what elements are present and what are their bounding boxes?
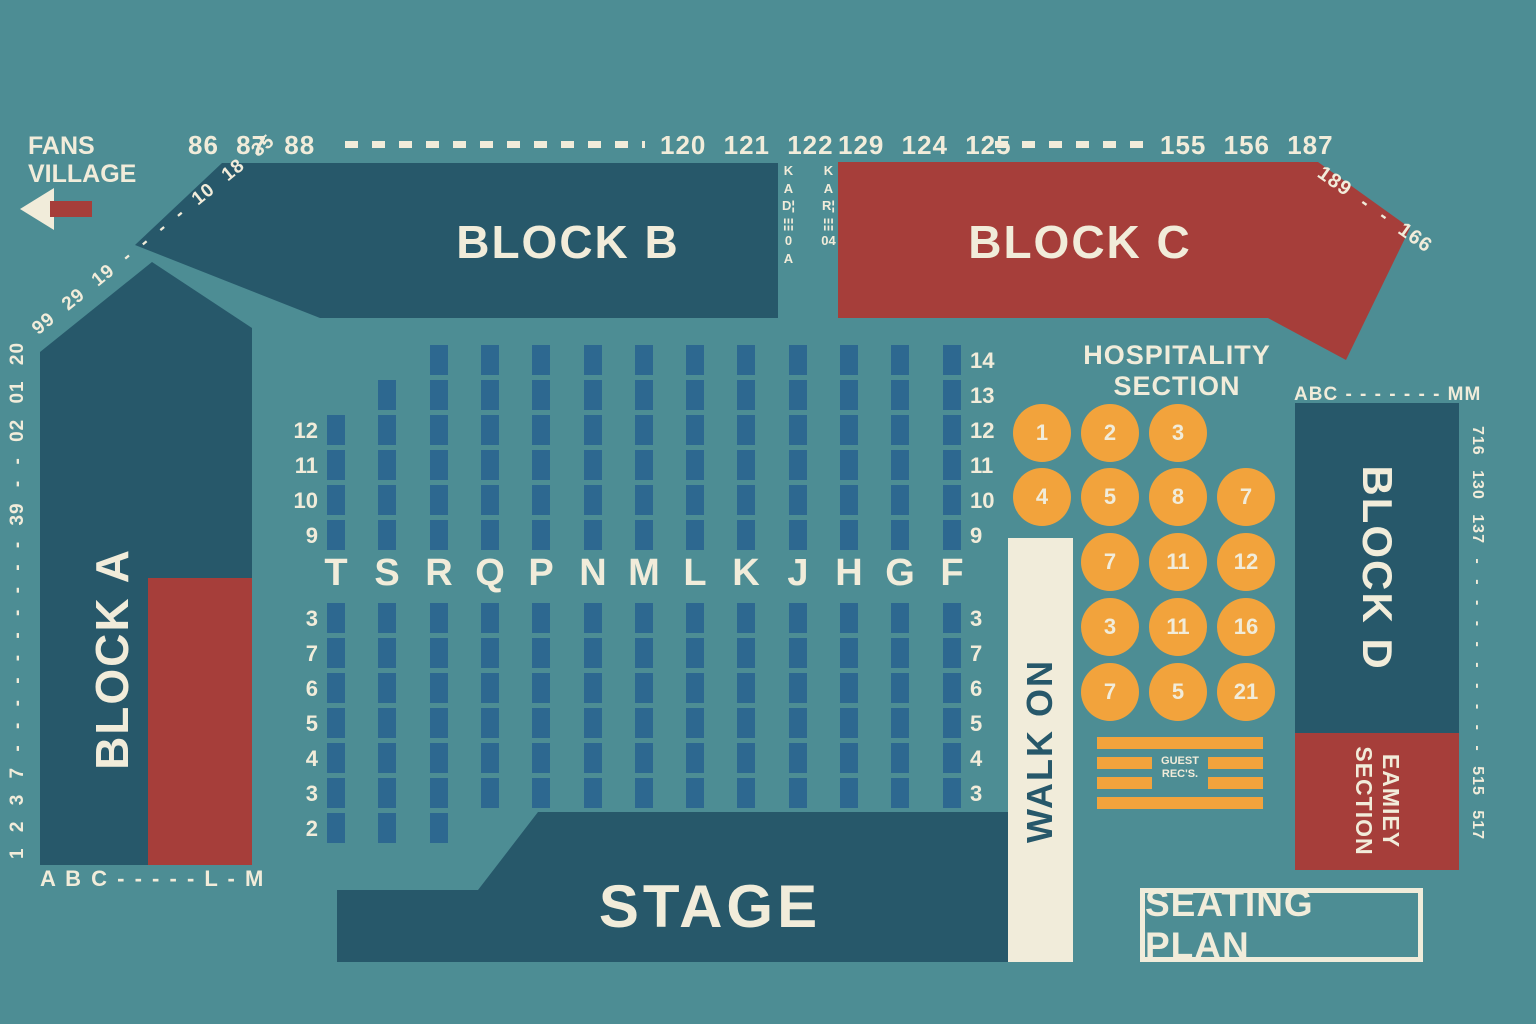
seat[interactable] xyxy=(686,520,704,550)
row-letter: M xyxy=(618,552,670,595)
seat[interactable] xyxy=(378,520,396,550)
guest-stripe xyxy=(1097,777,1152,789)
seat[interactable] xyxy=(584,708,602,738)
seat[interactable] xyxy=(430,520,448,550)
block-d-label: BLOCK D xyxy=(1353,403,1401,733)
seat[interactable] xyxy=(378,603,396,633)
seat[interactable] xyxy=(840,708,858,738)
seat[interactable] xyxy=(430,415,448,445)
row-number: 3 xyxy=(970,781,1010,807)
hospitality-title-line2: SECTION xyxy=(1045,371,1309,402)
seat[interactable] xyxy=(891,708,909,738)
seat[interactable] xyxy=(943,520,961,550)
block-a-red-shape[interactable] xyxy=(148,578,252,865)
block-b-right-edge-numbers: KAD¦¦¦¦0A xyxy=(781,162,796,267)
row-number: 9 xyxy=(284,523,318,549)
seat[interactable] xyxy=(686,485,704,515)
seat[interactable] xyxy=(737,345,755,375)
row-letter: P xyxy=(515,552,567,595)
seat[interactable] xyxy=(327,743,345,773)
seat[interactable] xyxy=(789,778,807,808)
seat[interactable] xyxy=(481,638,499,668)
row-number: 2 xyxy=(284,816,318,842)
seat[interactable] xyxy=(584,673,602,703)
seat[interactable] xyxy=(378,380,396,410)
seat[interactable] xyxy=(584,345,602,375)
hospitality-table[interactable]: 7 xyxy=(1081,533,1139,591)
seat[interactable] xyxy=(327,450,345,480)
seat[interactable] xyxy=(891,603,909,633)
seat[interactable] xyxy=(737,485,755,515)
seat[interactable] xyxy=(327,708,345,738)
guest-stripe xyxy=(1097,757,1152,769)
seat[interactable] xyxy=(481,345,499,375)
hospitality-table[interactable]: 7 xyxy=(1081,663,1139,721)
row-letter: G xyxy=(874,552,926,595)
seat[interactable] xyxy=(430,708,448,738)
seat[interactable] xyxy=(532,603,550,633)
seat[interactable] xyxy=(840,415,858,445)
fans-village-arrow-icon xyxy=(20,188,90,230)
seat[interactable] xyxy=(891,638,909,668)
seat[interactable] xyxy=(943,603,961,633)
row-number: 12 xyxy=(970,418,1010,444)
seat[interactable] xyxy=(686,743,704,773)
seat[interactable] xyxy=(789,743,807,773)
row-letter: K xyxy=(720,552,772,595)
seat[interactable] xyxy=(430,673,448,703)
seat[interactable] xyxy=(532,520,550,550)
seat[interactable] xyxy=(327,415,345,445)
seat[interactable] xyxy=(789,603,807,633)
seat[interactable] xyxy=(635,673,653,703)
seat[interactable] xyxy=(635,603,653,633)
guest-stripe xyxy=(1208,777,1263,789)
seat[interactable] xyxy=(891,415,909,445)
row-number: 4 xyxy=(970,746,1010,772)
seat[interactable] xyxy=(891,345,909,375)
fans-village-label: FANS VILLAGE xyxy=(28,132,136,188)
block-a-label: BLOCK A xyxy=(85,474,139,844)
block-c-top-dashes xyxy=(995,141,1145,148)
seat[interactable] xyxy=(686,450,704,480)
seat[interactable] xyxy=(481,380,499,410)
seat[interactable] xyxy=(789,450,807,480)
seat[interactable] xyxy=(943,778,961,808)
seat[interactable] xyxy=(840,743,858,773)
row-number: 7 xyxy=(284,641,318,667)
seat[interactable] xyxy=(943,415,961,445)
row-letter: H xyxy=(823,552,875,595)
seat[interactable] xyxy=(840,603,858,633)
row-letter: S xyxy=(361,552,413,595)
seat[interactable] xyxy=(635,778,653,808)
seat[interactable] xyxy=(891,520,909,550)
seat[interactable] xyxy=(891,380,909,410)
seat[interactable] xyxy=(584,603,602,633)
seat[interactable] xyxy=(737,708,755,738)
row-number: 11 xyxy=(970,453,1010,479)
row-number: 11 xyxy=(284,453,318,479)
seat[interactable] xyxy=(378,415,396,445)
block-c-top-numbers-right: 155 156 187 xyxy=(1160,130,1334,161)
block-c-left-edge-numbers: KAR¦¦¦¦04 xyxy=(821,162,836,250)
seating-plan-root: FANS VILLAGE BLOCK B BLOCK C BLOCK A 86 … xyxy=(0,0,1536,1024)
seat[interactable] xyxy=(532,708,550,738)
seat[interactable] xyxy=(737,743,755,773)
fans-village-line2: VILLAGE xyxy=(28,160,136,188)
seat[interactable] xyxy=(584,778,602,808)
hospitality-table[interactable]: 4 xyxy=(1013,468,1071,526)
hospitality-title-line1: HOSPITALITY xyxy=(1045,340,1309,371)
seat[interactable] xyxy=(532,345,550,375)
seat[interactable] xyxy=(840,380,858,410)
guest-label-line2: REC'S. xyxy=(1152,768,1208,781)
seat[interactable] xyxy=(378,813,396,843)
row-number: 4 xyxy=(284,746,318,772)
row-number: 6 xyxy=(970,676,1010,702)
seat[interactable] xyxy=(584,485,602,515)
row-number: 9 xyxy=(970,523,1010,549)
family-section-line2: SECTION xyxy=(1350,721,1377,881)
block-c-top-numbers-left: 129 124 125 xyxy=(838,130,1012,161)
seat[interactable] xyxy=(840,638,858,668)
seat[interactable] xyxy=(378,450,396,480)
block-c-label: BLOCK C xyxy=(930,215,1230,269)
hospitality-table[interactable]: 1 xyxy=(1013,404,1071,462)
seat[interactable] xyxy=(943,673,961,703)
hospitality-table[interactable]: 12 xyxy=(1217,533,1275,591)
seat[interactable] xyxy=(737,638,755,668)
seat[interactable] xyxy=(378,778,396,808)
seat[interactable] xyxy=(789,415,807,445)
seat[interactable] xyxy=(789,638,807,668)
seat[interactable] xyxy=(430,450,448,480)
seat[interactable] xyxy=(327,638,345,668)
guest-stripe xyxy=(1208,757,1263,769)
row-number: 3 xyxy=(284,781,318,807)
seat[interactable] xyxy=(430,638,448,668)
seat[interactable] xyxy=(584,415,602,445)
seat[interactable] xyxy=(584,450,602,480)
seat[interactable] xyxy=(943,450,961,480)
seat[interactable] xyxy=(430,778,448,808)
row-letter: L xyxy=(669,552,721,595)
seat[interactable] xyxy=(737,380,755,410)
seat[interactable] xyxy=(789,380,807,410)
row-number: 5 xyxy=(970,711,1010,737)
hospitality-table[interactable]: 7 xyxy=(1217,468,1275,526)
seat[interactable] xyxy=(943,743,961,773)
hospitality-title: HOSPITALITY SECTION xyxy=(1045,340,1309,402)
seat[interactable] xyxy=(481,485,499,515)
seat[interactable] xyxy=(378,708,396,738)
seat[interactable] xyxy=(891,673,909,703)
seat[interactable] xyxy=(686,778,704,808)
seat[interactable] xyxy=(686,380,704,410)
guest-area: GUEST REC'S. xyxy=(1097,737,1263,809)
seat[interactable] xyxy=(943,345,961,375)
seat[interactable] xyxy=(378,485,396,515)
seat[interactable] xyxy=(635,708,653,738)
row-number: 14 xyxy=(970,348,1010,374)
seat[interactable] xyxy=(686,603,704,633)
guest-stripe xyxy=(1097,737,1263,749)
seat[interactable] xyxy=(430,345,448,375)
hospitality-table[interactable]: 5 xyxy=(1081,468,1139,526)
seat[interactable] xyxy=(532,673,550,703)
seat[interactable] xyxy=(481,743,499,773)
seat[interactable] xyxy=(635,415,653,445)
row-number: 12 xyxy=(284,418,318,444)
row-letter: T xyxy=(310,552,362,595)
seat[interactable] xyxy=(532,415,550,445)
hospitality-table[interactable]: 11 xyxy=(1149,533,1207,591)
hospitality-table[interactable]: 3 xyxy=(1081,598,1139,656)
seat[interactable] xyxy=(737,450,755,480)
row-letter: F xyxy=(926,552,978,595)
seat[interactable] xyxy=(686,673,704,703)
row-letter: J xyxy=(772,552,824,595)
seat[interactable] xyxy=(635,450,653,480)
seat[interactable] xyxy=(789,520,807,550)
seat[interactable] xyxy=(789,345,807,375)
seat[interactable] xyxy=(789,485,807,515)
seat[interactable] xyxy=(584,638,602,668)
seat[interactable] xyxy=(737,778,755,808)
seat[interactable] xyxy=(378,673,396,703)
fans-village-line1: FANS xyxy=(28,132,136,160)
seat[interactable] xyxy=(840,673,858,703)
seat[interactable] xyxy=(789,673,807,703)
seat[interactable] xyxy=(943,485,961,515)
seat[interactable] xyxy=(532,743,550,773)
seat[interactable] xyxy=(378,638,396,668)
guest-label-line1: GUEST xyxy=(1152,755,1208,768)
seat[interactable] xyxy=(686,415,704,445)
row-number: 7 xyxy=(970,641,1010,667)
hospitality-table[interactable]: 3 xyxy=(1149,404,1207,462)
seat[interactable] xyxy=(481,708,499,738)
seat[interactable] xyxy=(737,415,755,445)
row-number: 5 xyxy=(284,711,318,737)
seat[interactable] xyxy=(532,380,550,410)
row-letter: R xyxy=(413,552,465,595)
seat[interactable] xyxy=(327,813,345,843)
seat[interactable] xyxy=(737,520,755,550)
walkway-label: WALK ON xyxy=(1019,601,1061,901)
seat[interactable] xyxy=(891,485,909,515)
seat[interactable] xyxy=(481,778,499,808)
guest-stripe xyxy=(1097,797,1263,809)
hospitality-table[interactable]: 16 xyxy=(1217,598,1275,656)
seat[interactable] xyxy=(378,743,396,773)
row-number: 13 xyxy=(970,383,1010,409)
seat[interactable] xyxy=(789,708,807,738)
row-number: 10 xyxy=(284,488,318,514)
seat[interactable] xyxy=(635,485,653,515)
family-section-line1: EAMIEY xyxy=(1377,721,1404,881)
seat[interactable] xyxy=(481,415,499,445)
seat[interactable] xyxy=(635,345,653,375)
seat[interactable] xyxy=(430,603,448,633)
seat[interactable] xyxy=(481,673,499,703)
seat[interactable] xyxy=(327,673,345,703)
seating-plan-legend-label: SEATING PLAN xyxy=(1145,883,1418,967)
seat[interactable] xyxy=(481,450,499,480)
seat[interactable] xyxy=(532,638,550,668)
row-letter: N xyxy=(567,552,619,595)
seat[interactable] xyxy=(430,485,448,515)
seat[interactable] xyxy=(635,638,653,668)
seat[interactable] xyxy=(840,345,858,375)
hospitality-table[interactable]: 2 xyxy=(1081,404,1139,462)
seat[interactable] xyxy=(532,450,550,480)
block-a-left-edge-numbers: 1 2 3 7 - - - - - - - - - - 39 - - 02 01… xyxy=(7,359,29,859)
seat[interactable] xyxy=(532,485,550,515)
hospitality-table[interactable]: 11 xyxy=(1149,598,1207,656)
seat[interactable] xyxy=(943,380,961,410)
seat[interactable] xyxy=(943,708,961,738)
seat[interactable] xyxy=(840,520,858,550)
seat[interactable] xyxy=(327,778,345,808)
seat[interactable] xyxy=(430,813,448,843)
family-section-label: EAMIEY SECTION xyxy=(1350,721,1404,881)
hospitality-table[interactable]: 5 xyxy=(1149,663,1207,721)
seat[interactable] xyxy=(584,520,602,550)
seat[interactable] xyxy=(327,485,345,515)
seat[interactable] xyxy=(840,450,858,480)
seat[interactable] xyxy=(891,778,909,808)
seat[interactable] xyxy=(737,603,755,633)
seat[interactable] xyxy=(635,520,653,550)
seat[interactable] xyxy=(532,778,550,808)
row-number: 10 xyxy=(970,488,1010,514)
seat[interactable] xyxy=(943,638,961,668)
block-b-top-numbers-right: 120 121 122 xyxy=(660,130,834,161)
row-number: 6 xyxy=(284,676,318,702)
seat[interactable] xyxy=(584,743,602,773)
block-d-right-edge-numbers: 716 130 137 - - - - - - - - - - 515 517 xyxy=(1468,403,1486,863)
seat[interactable] xyxy=(891,743,909,773)
seating-plan-legend: SEATING PLAN xyxy=(1140,888,1423,962)
seat[interactable] xyxy=(840,485,858,515)
seat[interactable] xyxy=(891,450,909,480)
hospitality-table[interactable]: 8 xyxy=(1149,468,1207,526)
block-a-bottom-letters: A B C - - - - - L - M xyxy=(40,866,264,892)
seat[interactable] xyxy=(481,520,499,550)
seat[interactable] xyxy=(327,603,345,633)
block-b-label: BLOCK B xyxy=(418,215,718,269)
seat[interactable] xyxy=(840,778,858,808)
seat[interactable] xyxy=(430,743,448,773)
seat[interactable] xyxy=(327,520,345,550)
seat[interactable] xyxy=(737,673,755,703)
block-d-top-letters: ABC - - - - - - - MM xyxy=(1294,384,1481,406)
seat[interactable] xyxy=(635,743,653,773)
seat[interactable] xyxy=(686,345,704,375)
seat[interactable] xyxy=(686,638,704,668)
seat[interactable] xyxy=(584,380,602,410)
seat[interactable] xyxy=(481,603,499,633)
row-letter: Q xyxy=(464,552,516,595)
row-number: 3 xyxy=(284,606,318,632)
seat[interactable] xyxy=(635,380,653,410)
stage-label: STAGE xyxy=(560,872,860,941)
block-b-top-dashes xyxy=(345,141,645,148)
guest-label: GUEST REC'S. xyxy=(1152,755,1208,781)
seat[interactable] xyxy=(430,380,448,410)
row-number: 3 xyxy=(970,606,1010,632)
hospitality-table[interactable]: 21 xyxy=(1217,663,1275,721)
seat[interactable] xyxy=(686,708,704,738)
